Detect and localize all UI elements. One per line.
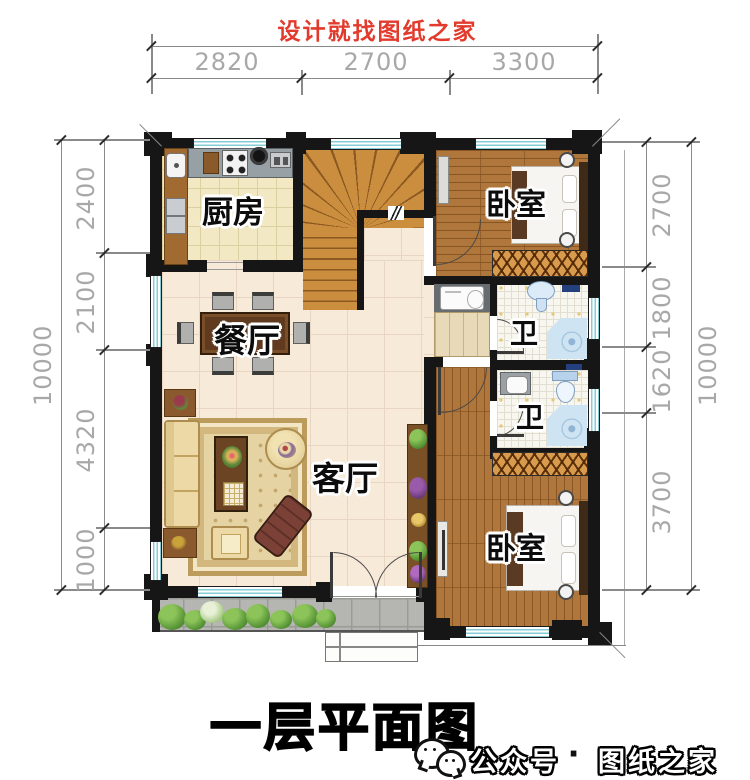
wechat-bubble-small [436, 750, 466, 777]
window-bath-bottom-right [588, 388, 600, 432]
dim-right-4: 3700 [648, 462, 676, 542]
post-left-mid-a [146, 253, 162, 277]
ground-line [418, 645, 626, 646]
bath-top-sink-base [536, 298, 547, 312]
entry-steps [325, 632, 418, 662]
kitchen-opening-line [207, 262, 243, 263]
step-rail [339, 633, 341, 661]
patio-bush [292, 604, 318, 628]
hall-cabinet [434, 312, 490, 357]
dim-top-1: 2820 [187, 48, 267, 76]
kitchen-sink [166, 153, 186, 178]
room-label-living: 客厅 [285, 452, 405, 500]
dining-chair [212, 292, 234, 310]
post-bed2-b [552, 620, 582, 640]
decor [171, 536, 187, 550]
bed-top-headboard [579, 162, 588, 250]
bath-top-towel [562, 285, 580, 292]
dim-right-2: 1800 [648, 268, 676, 348]
wall-bedroom-bottom-top-a [424, 357, 443, 367]
washer-door [467, 290, 484, 309]
bath-bottom-toilet-tank [552, 371, 578, 381]
room-label-bath-top: 卫 [496, 312, 552, 352]
wardrobe-bottom [492, 452, 588, 476]
page-title: 设计就找图纸之家 [235, 12, 520, 44]
armchair [211, 526, 249, 560]
flower-vase [222, 446, 242, 468]
window-stairs-top [330, 138, 402, 150]
wall-kitchen-right [293, 138, 303, 260]
front-door-leaf-right [419, 552, 422, 598]
floor-plan-page: 设计就找图纸之家 [0, 0, 750, 780]
wall-break-symbol [388, 206, 404, 220]
wechat-icon [414, 738, 466, 776]
dim-line-right-total [691, 142, 692, 590]
plant-pot [173, 395, 188, 410]
wall-bath-bottom-left-a [490, 370, 497, 401]
plant-purple [409, 477, 427, 499]
armchair-cushion [221, 534, 241, 554]
dining-chair [252, 292, 274, 310]
washer-panel [445, 291, 461, 293]
patio-bush [270, 610, 292, 629]
window-dining-left [150, 275, 162, 348]
dim-line-top-overall [152, 46, 598, 47]
vase-gold [411, 513, 426, 527]
dresser-top-bedroom [438, 156, 449, 204]
washing-machine [440, 286, 484, 310]
nightstand-top-b [559, 232, 575, 248]
patio-bush [316, 609, 336, 628]
side-table-bottom [163, 528, 197, 558]
wall-left [150, 138, 162, 600]
room-label-bath-bottom: 卫 [502, 396, 558, 436]
dim-line-right-segments [646, 142, 647, 590]
dim-line-left-segments [104, 140, 105, 590]
room-label-kitchen: 厨房 [173, 187, 293, 232]
dim-line-left-total [61, 140, 62, 590]
dim-right-total: 10000 [694, 326, 722, 406]
window-bath-top-right [588, 297, 600, 340]
wechat-tail [451, 768, 463, 780]
window-living-left [150, 541, 162, 581]
wardrobe-top [492, 250, 588, 277]
sofa [164, 420, 200, 528]
eave-line-right [624, 150, 625, 646]
dim-line-top-segments [152, 78, 598, 79]
faucet [174, 163, 179, 168]
dim-top-2: 2700 [336, 48, 416, 76]
bath-bottom-basin [506, 376, 528, 394]
nightstand-bottom-b [558, 584, 574, 600]
dim-left-total: 10000 [29, 326, 57, 406]
tv-stand-bottom-bedroom [437, 521, 448, 577]
dim-right-1: 2700 [648, 165, 676, 245]
tea-tray [223, 482, 244, 506]
wall-kitchen-bottom-b [243, 260, 303, 272]
wechat-account-label: 公众号 [470, 740, 560, 779]
dim-ext [602, 589, 700, 590]
patio-bush [158, 604, 186, 630]
wechat-brand: 图纸之家 [598, 740, 718, 779]
wechat-tail [418, 760, 431, 773]
gas-stove [222, 150, 248, 176]
cutting-board [203, 152, 219, 174]
kitchen-opening-line2 [207, 269, 243, 270]
wechat-eye [445, 759, 448, 762]
wechat-eye [433, 748, 436, 751]
dim-left-1: 2400 [72, 158, 100, 238]
wechat-separator: · [568, 732, 581, 777]
wall-bath-top-left-a [490, 280, 497, 316]
bath-bottom-deco [566, 364, 582, 370]
window-bedroom-top [475, 138, 547, 150]
wechat-eye [452, 759, 455, 762]
dim-right-3: 1620 [648, 341, 676, 421]
plant [409, 429, 427, 449]
window-living-bottom [197, 586, 283, 598]
bath-bottom-counter [500, 372, 531, 395]
post-bed2-a [424, 618, 450, 640]
nightstand-top-a [559, 152, 575, 168]
dim-top-3: 3300 [484, 48, 564, 76]
patio-bush [246, 604, 270, 628]
bed-bottom-headboard [579, 501, 588, 595]
patio-bush-pale [200, 601, 224, 623]
wechat-footer: 公众号 · 图纸之家 [410, 736, 740, 778]
room-label-dining: 餐厅 [187, 314, 307, 362]
dim-left-3: 4320 [72, 400, 100, 480]
sofa-back [166, 422, 174, 526]
dim-ext [602, 141, 700, 142]
window-bedroom-bottom [465, 626, 550, 638]
coffee-table [214, 436, 248, 512]
room-label-bedroom-bottom: 卧室 [456, 524, 576, 568]
side-table-top [164, 389, 196, 417]
tv-screen [442, 530, 445, 570]
stairs-run [303, 228, 357, 310]
dim-left-2: 2100 [72, 262, 100, 342]
wall-bedroom-bottom-top-b [490, 357, 497, 367]
nightstand-bottom-a [558, 490, 574, 506]
patio-bush [222, 608, 248, 630]
post-top-mid-b [400, 132, 436, 154]
wok-burner [250, 147, 268, 165]
wall-stair-divider [357, 210, 364, 310]
dim-left-4: 1000 [72, 520, 100, 600]
wechat-eye [424, 748, 427, 751]
microwave [270, 152, 291, 168]
room-label-bedroom-top: 卧室 [456, 180, 576, 224]
